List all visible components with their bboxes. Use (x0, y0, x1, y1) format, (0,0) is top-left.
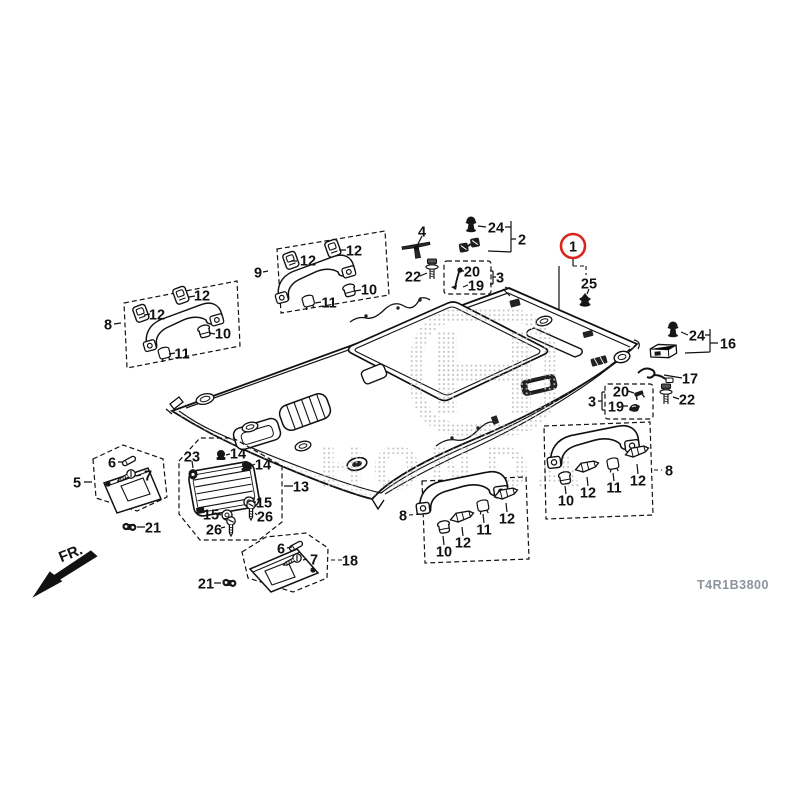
callout-7[interactable]: 7 (144, 469, 152, 485)
callout-10[interactable]: 10 (436, 545, 452, 561)
screw-26 (247, 501, 255, 520)
clip-14 (217, 450, 226, 460)
clip-21 (222, 577, 237, 588)
bolt-22 (660, 384, 672, 404)
grommet-10 (197, 324, 212, 339)
callout-12[interactable]: 12 (630, 474, 646, 490)
callout-22[interactable]: 22 (405, 270, 421, 286)
grommet-10 (342, 283, 357, 298)
clip-12 (132, 304, 150, 323)
screw-26 (227, 517, 235, 536)
callout-24[interactable]: 24 (488, 221, 504, 237)
callout-19[interactable]: 19 (468, 279, 484, 295)
callout-26[interactable]: 26 (257, 510, 273, 526)
bolt-22 (426, 259, 438, 279)
parts-diagram-page: HONDA (0, 0, 800, 800)
callout-13[interactable]: 13 (293, 480, 309, 496)
callout-1[interactable]: 1 (569, 240, 577, 256)
callout-10[interactable]: 10 (215, 327, 231, 343)
callout-21[interactable]: 21 (145, 521, 161, 537)
push-clip-24 (668, 322, 679, 338)
clip-19 (629, 404, 640, 412)
callout-8[interactable]: 8 (104, 318, 112, 334)
clip-12 (282, 251, 300, 270)
callout-14[interactable]: 14 (230, 447, 246, 463)
clip-12 (172, 286, 190, 305)
callout-5[interactable]: 5 (73, 476, 81, 492)
clip-12 (449, 509, 474, 524)
clip-21 (122, 521, 137, 532)
callout-19[interactable]: 19 (608, 400, 624, 416)
callout-12[interactable]: 12 (499, 512, 515, 528)
callout-6[interactable]: 6 (108, 456, 116, 472)
bracket-2 (458, 237, 481, 252)
callout-12[interactable]: 12 (194, 289, 210, 305)
rod-6 (122, 456, 137, 467)
callout-16[interactable]: 16 (720, 337, 736, 353)
callout-21[interactable]: 21 (198, 577, 214, 593)
push-clip-24 (466, 217, 477, 233)
callout-8[interactable]: 8 (665, 464, 673, 480)
watermark-text: HONDA (317, 435, 586, 503)
callout-24[interactable]: 24 (689, 329, 705, 345)
fr-direction-arrow: FR. (19, 537, 103, 598)
diagram-canvas: HONDA (0, 0, 800, 800)
callout-23[interactable]: 23 (184, 450, 200, 466)
module-16 (650, 343, 677, 359)
callout-14[interactable]: 14 (255, 458, 271, 474)
callout-9[interactable]: 9 (254, 266, 262, 282)
callout-3[interactable]: 3 (588, 395, 596, 411)
callout-15[interactable]: 15 (203, 508, 219, 524)
callout-12[interactable]: 12 (149, 308, 165, 324)
callout-4[interactable]: 4 (418, 225, 426, 241)
clip-11 (607, 457, 620, 473)
callout-10[interactable]: 10 (361, 283, 377, 299)
push-clip-25 (579, 293, 591, 307)
callout-11[interactable]: 11 (606, 481, 621, 497)
callout-12[interactable]: 12 (455, 536, 471, 552)
callout-11[interactable]: 11 (321, 296, 336, 312)
diagram-code: T4R1B3800 (697, 578, 769, 592)
callout-22[interactable]: 22 (679, 393, 695, 409)
callout-11[interactable]: 11 (476, 523, 491, 539)
clip-11 (302, 294, 316, 310)
clip-4 (402, 242, 432, 260)
callout-18[interactable]: 18 (342, 554, 358, 570)
callout-17[interactable]: 17 (682, 372, 698, 388)
callout-25[interactable]: 25 (581, 277, 597, 293)
callout-20[interactable]: 20 (613, 385, 629, 401)
callout-12[interactable]: 12 (580, 486, 596, 502)
callout-3[interactable]: 3 (496, 271, 504, 287)
callout-12[interactable]: 12 (346, 244, 362, 260)
callout-11[interactable]: 11 (174, 347, 189, 363)
clip-12 (324, 239, 342, 258)
callout-7[interactable]: 7 (310, 553, 318, 569)
callout-10[interactable]: 10 (558, 494, 574, 510)
callout-2[interactable]: 2 (518, 233, 526, 249)
callout-12[interactable]: 12 (300, 254, 316, 270)
clip-20 (634, 390, 645, 400)
callout-6[interactable]: 6 (277, 542, 285, 558)
callout-8[interactable]: 8 (399, 509, 407, 525)
callout-26[interactable]: 26 (206, 523, 222, 539)
clip-11 (477, 499, 490, 515)
grommet-10 (437, 520, 451, 534)
